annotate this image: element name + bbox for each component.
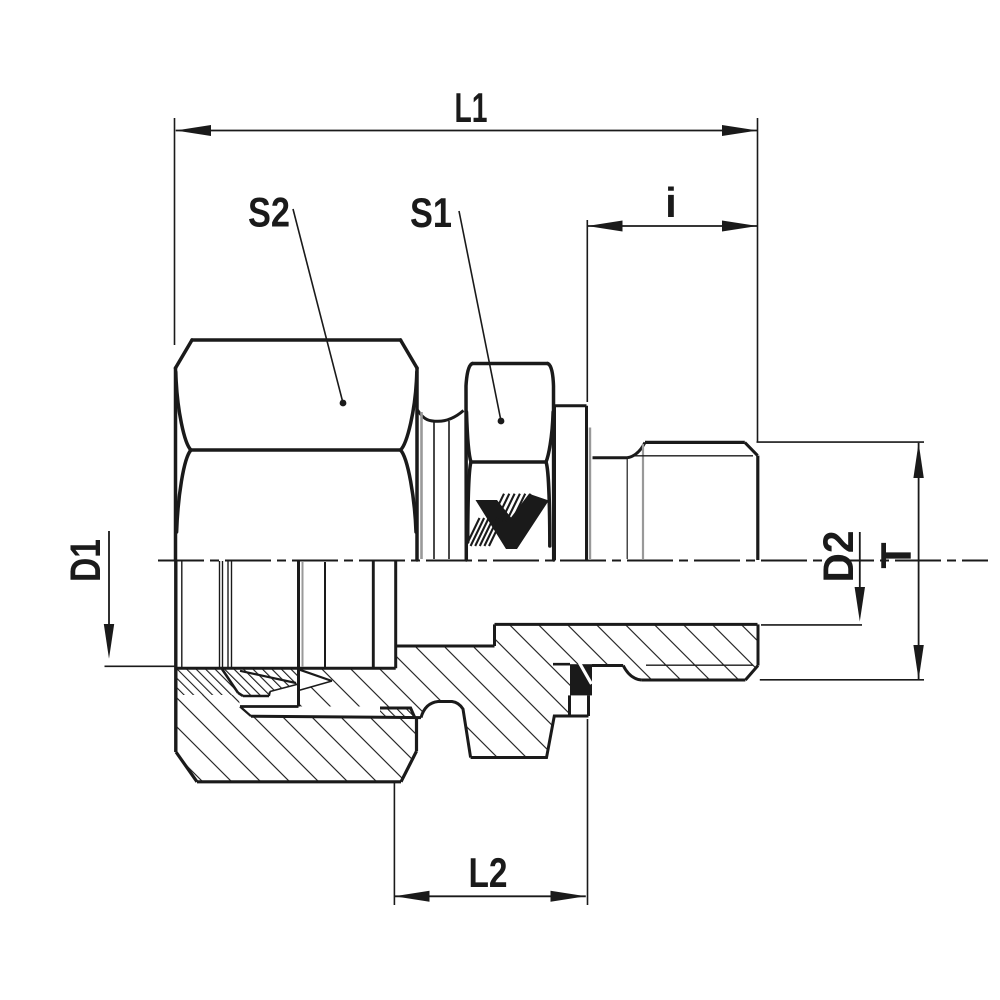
- svg-text:S1: S1: [410, 189, 452, 236]
- svg-text:i: i: [665, 179, 677, 226]
- svg-text:L1: L1: [455, 84, 488, 131]
- svg-text:T: T: [873, 542, 921, 568]
- svg-text:D2: D2: [815, 531, 863, 583]
- svg-text:S2: S2: [248, 189, 290, 236]
- svg-text:D1: D1: [62, 539, 110, 582]
- svg-text:L2: L2: [469, 849, 508, 896]
